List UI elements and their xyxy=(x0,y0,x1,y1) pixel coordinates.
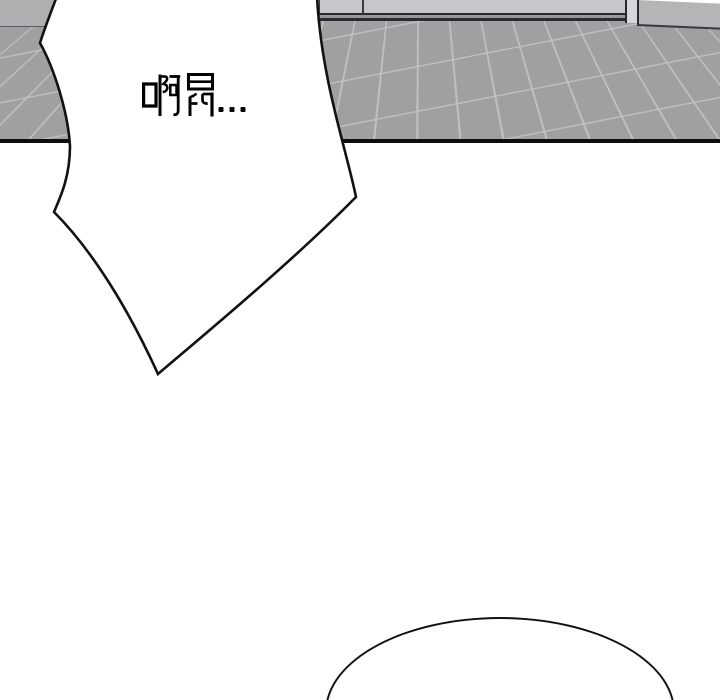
glyph-ang xyxy=(189,75,213,117)
speech-text-glyphs xyxy=(142,73,252,117)
speech-text: 啊昂... xyxy=(142,73,252,117)
glyph-ellipsis-dots xyxy=(219,107,246,112)
glyph-a xyxy=(144,75,181,117)
comic-panel: 啊昂... xyxy=(0,0,720,700)
speech-bubble xyxy=(0,0,720,700)
speech-bubble-outline xyxy=(40,0,356,374)
